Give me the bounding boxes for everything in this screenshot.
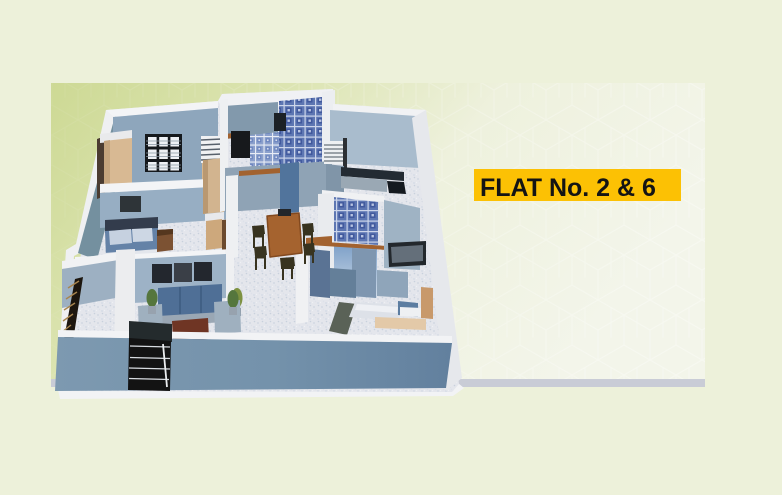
svg-text:FLAT No. 2 & 6: FLAT No. 2 & 6: [480, 174, 656, 202]
